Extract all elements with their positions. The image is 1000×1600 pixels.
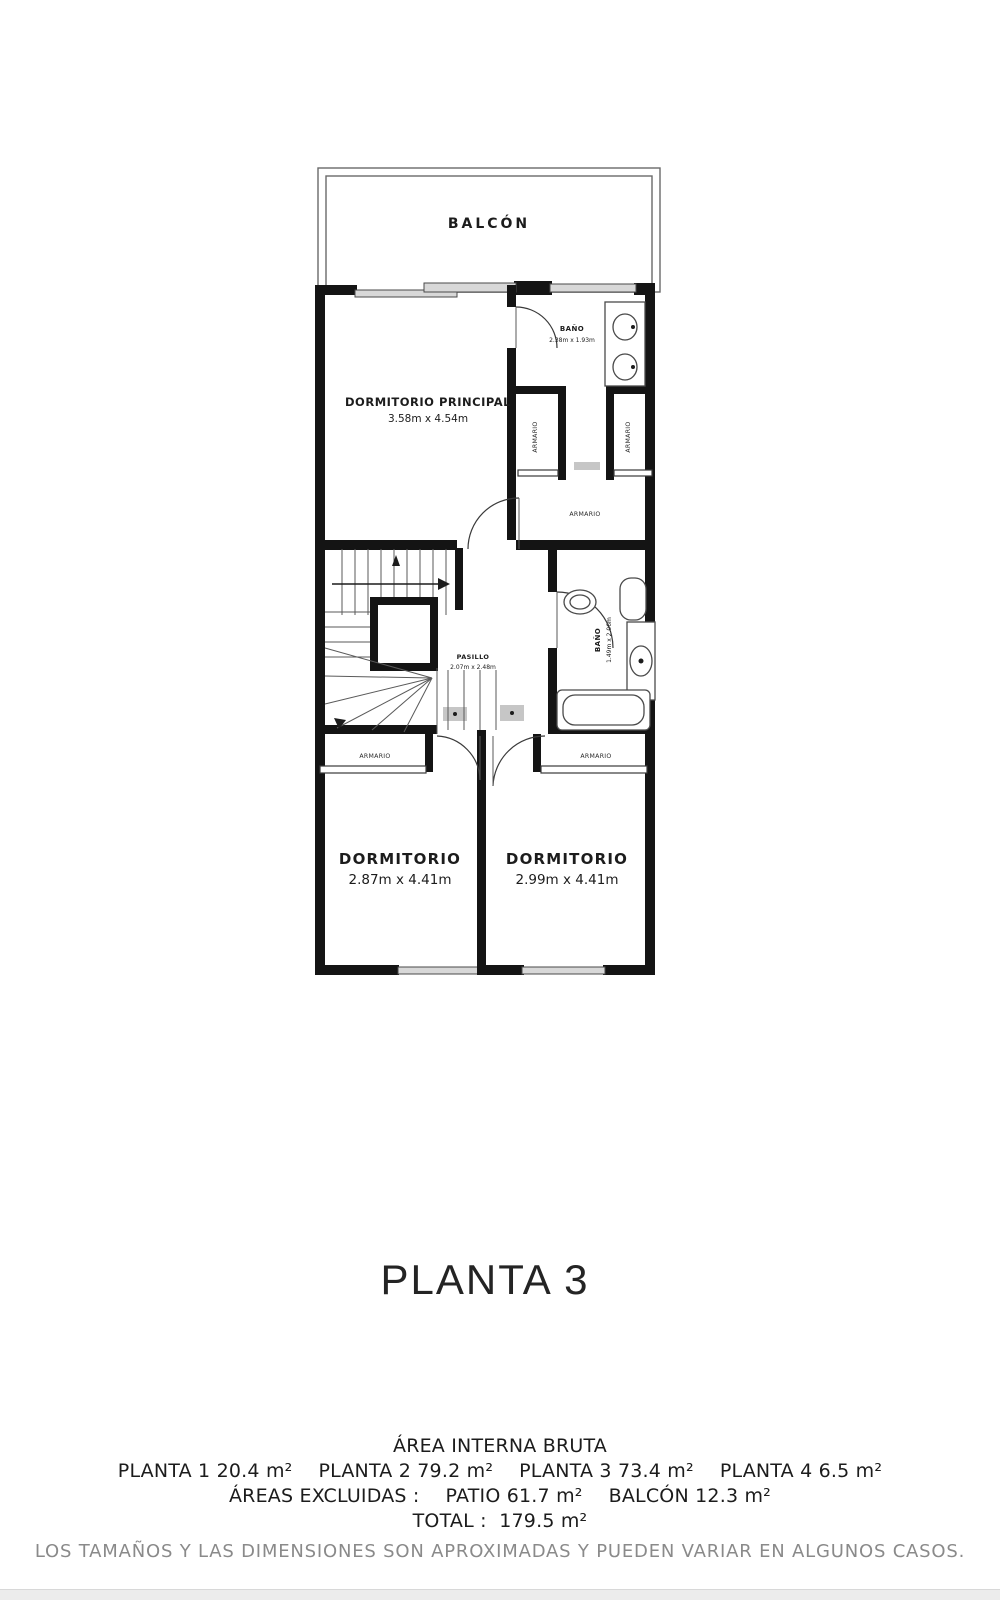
- bathroom-middle: BAÑO 1.49m x 2.06m: [557, 578, 655, 730]
- page-title: PLANTA 3: [0, 1256, 970, 1304]
- bedroom-left-dims: 2.87m x 4.41m: [349, 872, 452, 888]
- closet-label: ARMARIO: [359, 753, 390, 760]
- floor-area: PLANTA 4 6.5 m²: [720, 1459, 882, 1484]
- bedroom-left-label: DORMITORIO: [339, 850, 461, 868]
- floor-area: PLANTA 2 79.2 m²: [318, 1459, 493, 1484]
- staircase: [325, 549, 496, 734]
- excluded-area: PATIO 61.7 m²: [446, 1484, 583, 1509]
- floor-area: PLANTA 1 20.4 m²: [118, 1459, 293, 1484]
- hallway: PASILLO 2.07m x 2.48m: [450, 653, 496, 671]
- disclaimer: LOS TAMAÑOS Y LAS DIMENSIONES SON APROXI…: [0, 1539, 1000, 1564]
- balcony: BALCÓN: [318, 168, 660, 292]
- hallway-label: PASILLO: [457, 653, 490, 661]
- excluded-label: ÁREAS EXCLUIDAS :: [229, 1484, 420, 1509]
- master-bedroom: DORMITORIO PRINCIPAL 3.58m x 4.54m: [345, 395, 511, 425]
- bathroom-top-label: BAÑO: [560, 324, 584, 333]
- area-summary-excluded: ÁREAS EXCLUIDAS :PATIO 61.7 m²BALCÓN 12.…: [0, 1484, 1000, 1509]
- master-bedroom-dims: 3.58m x 4.54m: [388, 413, 468, 425]
- closet-front: [320, 766, 426, 773]
- closet-front: [541, 766, 647, 773]
- closet-label: ARMARIO: [580, 753, 611, 760]
- closet-label: ARMARIO: [532, 421, 539, 452]
- bidet: [620, 578, 646, 620]
- bedroom-right: ARMARIO DORMITORIO 2.99m x 4.41m: [506, 753, 647, 888]
- hallway-dims: 2.07m x 2.48m: [450, 664, 496, 671]
- stair-arrow: [392, 555, 400, 566]
- master-bedroom-label: DORMITORIO PRINCIPAL: [345, 395, 511, 409]
- area-summary-floors: PLANTA 1 20.4 m²PLANTA 2 79.2 m²PLANTA 3…: [0, 1459, 1000, 1484]
- bedroom-left-door-arc: [437, 736, 480, 780]
- balcony-label: BALCÓN: [448, 214, 530, 232]
- bedroom-right-label: DORMITORIO: [506, 850, 628, 868]
- threshold: [574, 462, 600, 470]
- balcony-door: [424, 283, 516, 292]
- bathroom-middle-label: BAÑO: [593, 628, 602, 652]
- area-summary-total: TOTAL : 179.5 m²: [0, 1509, 1000, 1534]
- floor-area: PLANTA 3 73.4 m²: [519, 1459, 694, 1484]
- area-summary: ÁREA INTERNA BRUTA PLANTA 1 20.4 m²PLANT…: [0, 1434, 1000, 1564]
- bathroom-top-dims: 2.38m x 1.93m: [549, 337, 595, 344]
- bathroom-middle-dims: 1.49m x 2.06m: [606, 617, 613, 663]
- closet-label: ARMARIO: [625, 421, 632, 452]
- excluded-area: BALCÓN 12.3 m²: [609, 1484, 771, 1509]
- bedroom-left: ARMARIO DORMITORIO 2.87m x 4.41m: [320, 753, 461, 888]
- bedroom-right-dims: 2.99m x 4.41m: [516, 872, 619, 888]
- bedroom-left-window: [398, 967, 479, 974]
- bedroom-right-window: [522, 967, 605, 974]
- bottom-divider: [0, 1589, 1000, 1600]
- floor-plan-drawing: BALCÓN: [0, 0, 1000, 1030]
- bath-top-window: [550, 284, 636, 292]
- stair-arrow: [438, 578, 450, 590]
- closet-label: ARMARIO: [569, 511, 600, 518]
- area-summary-heading: ÁREA INTERNA BRUTA: [0, 1434, 1000, 1459]
- floor-plan-page: BALCÓN: [0, 0, 1000, 1600]
- stair-void: [374, 601, 434, 667]
- bathroom-top: BAÑO 2.38m x 1.93m: [549, 302, 645, 386]
